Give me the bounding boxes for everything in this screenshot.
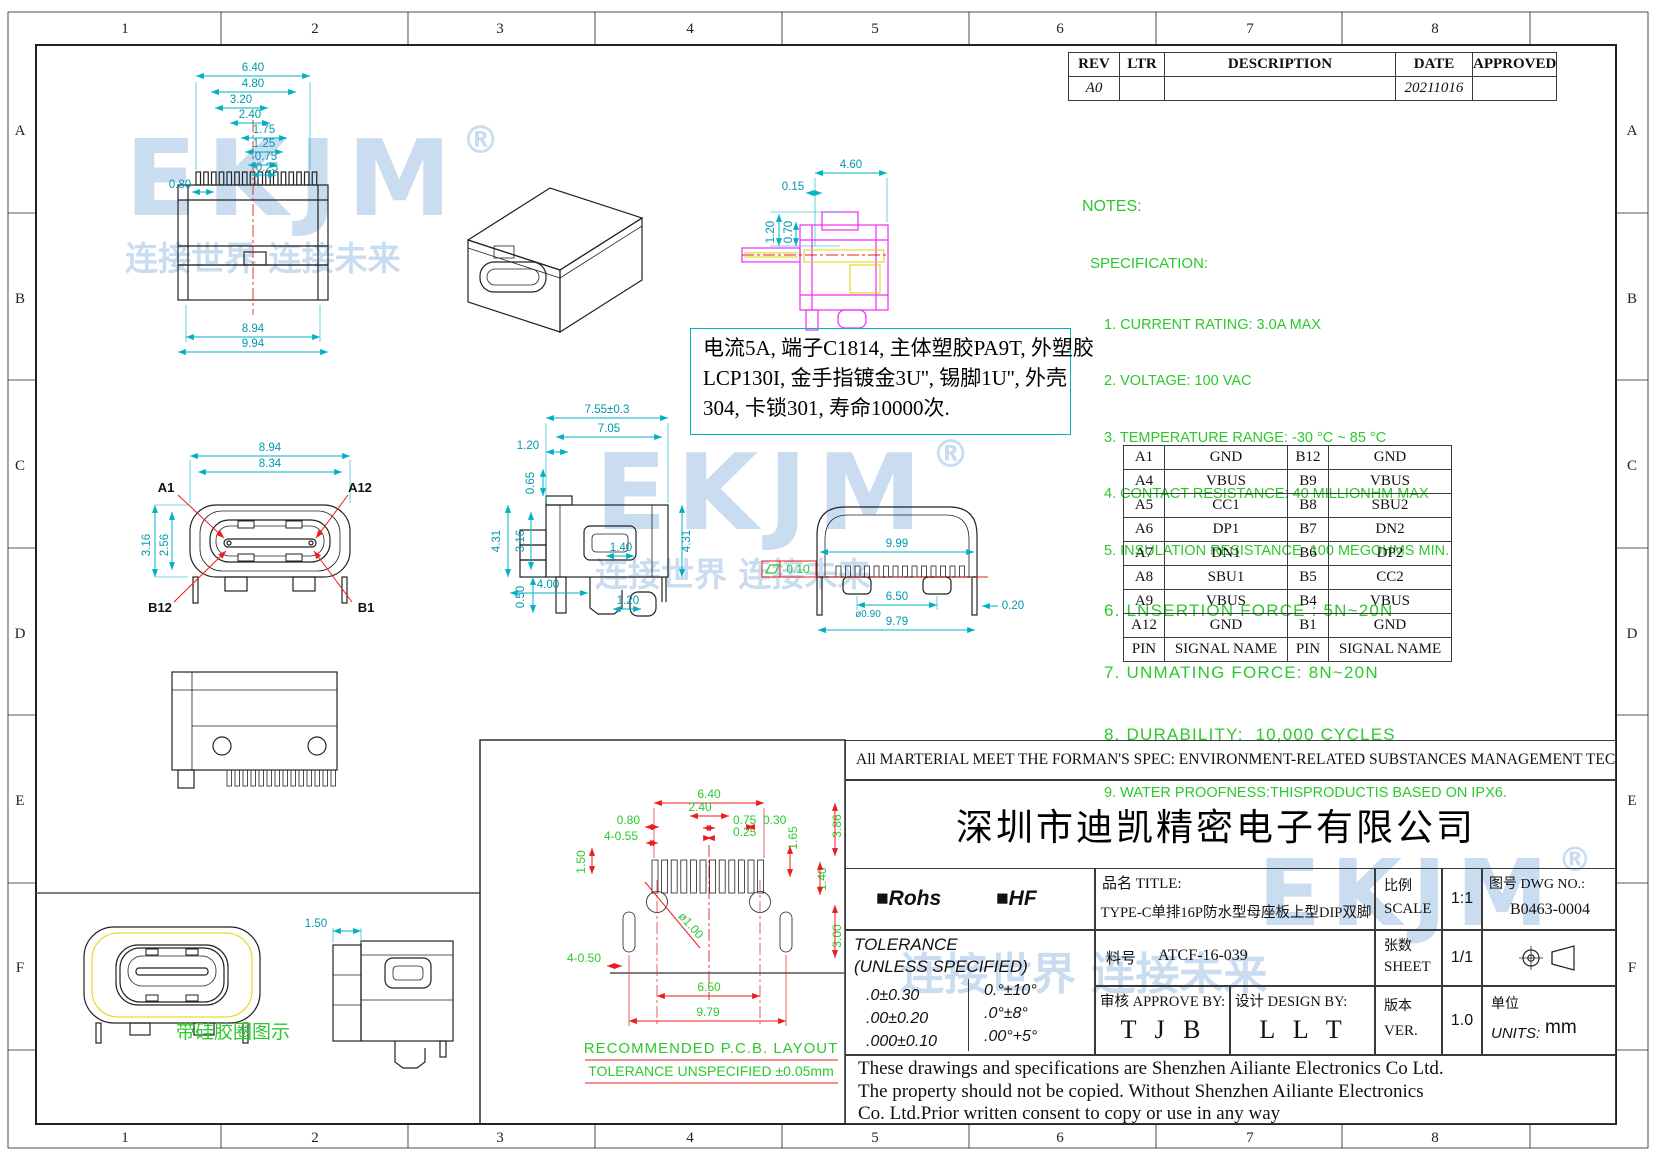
rev-value: A0 xyxy=(1069,77,1120,101)
table-row: A5CC1B8SBU2 xyxy=(1124,494,1452,518)
signal-cell: DN2 xyxy=(1329,518,1452,542)
svg-text:B1: B1 xyxy=(358,600,375,615)
note-item: 2. VOLTAGE: 100 VAC xyxy=(1104,373,1552,389)
svg-text:F: F xyxy=(1628,960,1636,976)
svg-text:2.40: 2.40 xyxy=(688,800,712,814)
units-label-en: UNITS: xyxy=(1491,1025,1540,1042)
scale-label-cell: 比例 SCALE xyxy=(1375,868,1442,930)
part-number-value: ATCF-16-039 xyxy=(1158,947,1248,965)
material-note-line: LCP130I, 金手指镀金3U'', 锡脚1U'', 外壳 xyxy=(703,363,1058,393)
svg-text:B12: B12 xyxy=(148,600,172,615)
pin-cell: A5 xyxy=(1124,494,1165,518)
pin-cell: A6 xyxy=(1124,518,1165,542)
svg-text:4-0.50: 4-0.50 xyxy=(567,951,601,965)
signal-cell: SBU2 xyxy=(1329,494,1452,518)
ltr-header: LTR xyxy=(1120,53,1165,77)
pin-cell: B8 xyxy=(1288,494,1329,518)
note-item: 1. CURRENT RATING: 3.0A MAX xyxy=(1104,317,1552,333)
table-row: A12GNDB1GND xyxy=(1124,614,1452,638)
date-value: 20211016 xyxy=(1396,77,1473,101)
sheet-label-cell: 张数 SHEET xyxy=(1375,930,1442,986)
units-cell: 单位 UNITS: mm xyxy=(1482,986,1616,1055)
dwg-no-cell: 图号 DWG NO.: B0463-0004 xyxy=(1482,868,1616,930)
svg-text:8.94: 8.94 xyxy=(242,323,265,335)
projection-cell xyxy=(1482,930,1616,986)
svg-text:4.80: 4.80 xyxy=(242,78,264,90)
svg-text:8: 8 xyxy=(1431,21,1439,37)
design-label: 设计 DESIGN BY: xyxy=(1235,990,1347,1011)
table-row: A4VBUSB9VBUS xyxy=(1124,470,1452,494)
flatness-callout: 0.10 xyxy=(762,561,816,577)
isometric-view xyxy=(468,188,642,332)
pin-cell: A12 xyxy=(1124,614,1165,638)
svg-text:5: 5 xyxy=(871,1130,879,1146)
material-note-line: 电流5A, 端子C1814, 主体塑胶PA9T, 外塑胶 xyxy=(703,333,1058,363)
svg-text:9.79: 9.79 xyxy=(886,616,908,628)
svg-text:7.55±0.3: 7.55±0.3 xyxy=(585,404,630,416)
front-view: 8.94 8.34 3.16 2.56 A1 A12 B12 B1 xyxy=(141,442,374,615)
revision-table: REV LTR DESCRIPTION DATE APPROVED A0 202… xyxy=(1068,52,1557,101)
svg-text:E: E xyxy=(1627,793,1636,809)
disclaimer-line: The property should not be copied. Witho… xyxy=(858,1081,1615,1104)
part-title: TYPE-C单排16P防水型母座板上型DIP双脚 xyxy=(1096,901,1376,922)
plan-view: 6.40 4.80 3.20 2.40 1.75 1.25 0.75 0.25 … xyxy=(169,62,328,352)
disclaimer-line: Co. Ltd.Prior written consent to copy or… xyxy=(858,1103,1615,1126)
svg-text:2.56: 2.56 xyxy=(159,534,171,556)
svg-text:6: 6 xyxy=(1056,21,1064,37)
signal-cell: SIGNAL NAME xyxy=(1165,638,1288,662)
tolerance-title: TOLERANCE xyxy=(854,935,958,955)
version-label-cn: 版本 xyxy=(1384,995,1412,1015)
svg-text:3.00: 3.00 xyxy=(830,924,844,948)
svg-text:6.50: 6.50 xyxy=(697,980,721,994)
svg-text:4.60: 4.60 xyxy=(840,159,862,171)
signal-cell: DN1 xyxy=(1165,542,1288,566)
svg-text:1.50: 1.50 xyxy=(305,918,327,930)
signal-cell: SBU1 xyxy=(1165,566,1288,590)
pin-cell: A9 xyxy=(1124,590,1165,614)
svg-text:6.40: 6.40 xyxy=(697,787,721,801)
table-row: A6DP1B7DN2 xyxy=(1124,518,1452,542)
flatness-symbol-icon xyxy=(766,565,779,573)
svg-text:1: 1 xyxy=(121,1130,129,1146)
disclaimer: These drawings and specifications are Sh… xyxy=(845,1055,1616,1124)
pin-assignment-table: A1GNDB12GND A4VBUSB9VBUS A5CC1B8SBU2 A6D… xyxy=(1123,445,1452,662)
signal-cell: GND xyxy=(1329,614,1452,638)
sheet-label-en: SHEET xyxy=(1384,959,1431,976)
svg-text:9.79: 9.79 xyxy=(696,1005,720,1019)
svg-text:A: A xyxy=(1627,123,1638,139)
svg-text:C: C xyxy=(1627,458,1637,474)
approve-value: T J B xyxy=(1096,1015,1231,1045)
svg-text:A: A xyxy=(15,123,26,139)
signal-cell: DP2 xyxy=(1329,542,1452,566)
notes-title: NOTES: xyxy=(1082,198,1552,216)
tolerance-angular: 0.°±10°.0°±8°.00°+5° xyxy=(984,979,1037,1048)
description-header: DESCRIPTION xyxy=(1165,53,1396,77)
table-row: A1GNDB12GND xyxy=(1124,446,1452,470)
svg-text:1.20: 1.20 xyxy=(517,440,539,452)
rohs-hf-cell: ■Rohs ■HF xyxy=(845,868,1095,930)
svg-text:9.99: 9.99 xyxy=(886,538,908,550)
svg-text:4: 4 xyxy=(686,1130,694,1146)
rear-view: 0.10 9.99 6.50 ø0.90 9.79 0.20 xyxy=(762,507,1024,630)
signal-cell: VBUS xyxy=(1165,470,1288,494)
svg-text:1: 1 xyxy=(121,21,129,37)
svg-text:3: 3 xyxy=(496,1130,504,1146)
gasket-caption: 带硅胶圈图示 xyxy=(176,1021,290,1043)
svg-text:0.65: 0.65 xyxy=(525,472,537,494)
svg-text:0.15: 0.15 xyxy=(782,181,804,193)
svg-text:4.00: 4.00 xyxy=(537,579,559,591)
part-number-cell: 料号 ATCF-16-039 xyxy=(1095,930,1375,986)
svg-text:2: 2 xyxy=(311,21,319,37)
svg-text:3: 3 xyxy=(496,21,504,37)
svg-text:D: D xyxy=(15,626,26,642)
disclaimer-line: These drawings and specifications are Sh… xyxy=(858,1058,1615,1081)
design-cell: 设计 DESIGN BY: L L T xyxy=(1230,986,1375,1055)
signal-cell: VBUS xyxy=(1329,470,1452,494)
pin-cell: B12 xyxy=(1288,446,1329,470)
svg-text:0.80: 0.80 xyxy=(617,813,641,827)
svg-text:2.40: 2.40 xyxy=(239,109,261,121)
signal-cell: DP1 xyxy=(1165,518,1288,542)
pin-cell: A1 xyxy=(1124,446,1165,470)
signal-cell: VBUS xyxy=(1165,590,1288,614)
svg-text:8.94: 8.94 xyxy=(259,442,282,454)
pcb-dimensions: 6.40 2.40 0.75 0.25 0.80 4-0.55 0.30 1.6… xyxy=(567,787,844,1026)
svg-text:C: C xyxy=(15,458,25,474)
plan-view-dimensions: 6.40 4.80 3.20 2.40 1.75 1.25 0.75 0.25 … xyxy=(169,62,328,352)
scale-label-en: SCALE xyxy=(1384,901,1432,918)
cross-section-dimensions: 4.60 0.15 1.20 0.70 xyxy=(765,159,887,246)
svg-text:8.34: 8.34 xyxy=(259,458,282,470)
tolerance-subtitle: (UNLESS SPECIFIED) xyxy=(854,957,1028,977)
table-row: PINSIGNAL NAMEPINSIGNAL NAME xyxy=(1124,638,1452,662)
third-angle-projection-icon xyxy=(1518,943,1582,973)
rev-header: REV xyxy=(1069,53,1120,77)
side-section-dimensions: 7.55±0.3 7.05 1.20 0.65 4.31 3.16 4.31 1… xyxy=(491,404,693,613)
svg-text:0.30: 0.30 xyxy=(763,813,787,827)
title-cell: 品名 TITLE: TYPE-C单排16P防水型母座板上型DIP双脚 xyxy=(1095,868,1375,930)
sheet-value-cell: 1/1 xyxy=(1442,930,1482,986)
svg-text:3.16: 3.16 xyxy=(515,530,527,552)
svg-text:3.86: 3.86 xyxy=(830,814,844,838)
pin-cell: B4 xyxy=(1288,590,1329,614)
pin-cell: B5 xyxy=(1288,566,1329,590)
svg-text:1.40: 1.40 xyxy=(815,867,829,891)
date-header: DATE xyxy=(1396,53,1473,77)
pin-cell: A7 xyxy=(1124,542,1165,566)
dwg-no-value: B0463-0004 xyxy=(1483,901,1617,919)
svg-text:6.40: 6.40 xyxy=(242,62,264,74)
svg-text:1.40: 1.40 xyxy=(610,542,632,554)
svg-text:B: B xyxy=(15,291,25,307)
svg-text:8: 8 xyxy=(1431,1130,1439,1146)
svg-text:9.94: 9.94 xyxy=(242,338,265,350)
svg-text:4.31: 4.31 xyxy=(681,530,693,552)
scale-value-cell: 1:1 xyxy=(1442,868,1482,930)
svg-text:0.10: 0.10 xyxy=(786,562,810,576)
svg-text:1.20: 1.20 xyxy=(617,595,639,607)
tolerance-linear: .0±0.30.00±0.20.000±0.10 xyxy=(866,984,937,1053)
units-value: mm xyxy=(1545,1017,1577,1039)
company-name: 深圳市迪凯精密电子有限公司 xyxy=(906,797,1526,851)
signal-cell: CC1 xyxy=(1165,494,1288,518)
signal-cell: SIGNAL NAME xyxy=(1329,638,1452,662)
description-value xyxy=(1165,77,1396,101)
svg-text:4: 4 xyxy=(686,21,694,37)
svg-text:3.16: 3.16 xyxy=(141,534,153,556)
svg-text:7: 7 xyxy=(1246,21,1254,37)
svg-text:D: D xyxy=(1627,626,1638,642)
scale-label-cn: 比例 xyxy=(1384,875,1412,895)
design-value: L L T xyxy=(1231,1015,1376,1045)
material-note-line: 304, 卡锁301, 寿命10000次. xyxy=(703,393,1058,423)
profile-view xyxy=(172,672,337,788)
pcb-layout: 6.40 2.40 0.75 0.25 0.80 4-0.55 0.30 1.6… xyxy=(480,740,845,1124)
svg-text:A12: A12 xyxy=(348,480,372,495)
pin-cell: B6 xyxy=(1288,542,1329,566)
note-item: 3. TEMPERATURE RANGE: -30 °C ~ 85 °C xyxy=(1104,430,1552,446)
svg-text:0.80: 0.80 xyxy=(169,179,191,191)
title-label: 品名 TITLE: xyxy=(1102,872,1182,893)
signal-cell: GND xyxy=(1165,446,1288,470)
notes-subtitle: SPECIFICATION: xyxy=(1090,255,1552,272)
pin-cell: B1 xyxy=(1288,614,1329,638)
version-label-cell: 版本 VER. xyxy=(1375,986,1442,1055)
signal-cell: CC2 xyxy=(1329,566,1452,590)
svg-text:4.31: 4.31 xyxy=(491,530,503,552)
svg-text:B: B xyxy=(1627,291,1637,307)
pin-cell: A8 xyxy=(1124,566,1165,590)
table-row: A8SBU1B5CC2 xyxy=(1124,566,1452,590)
ltr-value xyxy=(1120,77,1165,101)
pin-cell: B7 xyxy=(1288,518,1329,542)
rear-view-dimensions: 9.99 6.50 ø0.90 9.79 0.20 xyxy=(818,538,1024,630)
svg-text:0.70: 0.70 xyxy=(783,221,795,243)
svg-text:0.50: 0.50 xyxy=(515,586,527,608)
svg-text:1.50: 1.50 xyxy=(574,850,588,874)
svg-text:RECOMMENDED P.C.B. LAYOUT: RECOMMENDED P.C.B. LAYOUT xyxy=(584,1040,838,1057)
svg-text:2: 2 xyxy=(311,1130,319,1146)
part-number-label: 料号 xyxy=(1106,947,1136,968)
material-standard-strip: All MARTERIAL MEET THE FORMAN'S SPEC: EN… xyxy=(845,740,1616,780)
signal-cell: GND xyxy=(1165,614,1288,638)
material-note-box: 电流5A, 端子C1814, 主体塑胶PA9T, 外塑胶 LCP130I, 金手… xyxy=(690,328,1071,435)
note-item: 7. UNMATING FORCE: 8N~20N xyxy=(1104,663,1552,683)
signal-cell: VBUS xyxy=(1329,590,1452,614)
pin-cell: B9 xyxy=(1288,470,1329,494)
pcb-layout-caption: RECOMMENDED P.C.B. LAYOUT TOLERANCE UNSP… xyxy=(584,1040,838,1083)
sheet-label-cn: 张数 xyxy=(1384,935,1412,955)
svg-text:0.20: 0.20 xyxy=(1002,600,1024,612)
gasket-front-view: 带硅胶圈图示 xyxy=(84,927,290,1043)
rohs-label: ■Rohs xyxy=(876,887,941,911)
svg-text:1.20: 1.20 xyxy=(765,221,777,243)
table-row: A9VBUSB4VBUS xyxy=(1124,590,1452,614)
approved-value xyxy=(1473,77,1557,101)
svg-text:6.50: 6.50 xyxy=(886,591,908,603)
svg-text:5: 5 xyxy=(871,21,879,37)
svg-text:1.25: 1.25 xyxy=(253,138,275,150)
pin-cell: PIN xyxy=(1288,638,1329,662)
svg-text:7.05: 7.05 xyxy=(598,423,620,435)
svg-text:3.20: 3.20 xyxy=(230,94,252,106)
version-value-cell: 1.0 xyxy=(1442,986,1482,1055)
svg-text:TOLERANCE UNSPECIFIED ±0.05mm: TOLERANCE UNSPECIFIED ±0.05mm xyxy=(588,1063,833,1079)
gasket-dimension: 1.50 xyxy=(305,918,361,943)
svg-text:F: F xyxy=(16,960,24,976)
units-label-cn: 单位 xyxy=(1491,993,1519,1013)
tolerance-cell: TOLERANCE (UNLESS SPECIFIED) .0±0.30.00±… xyxy=(845,930,1095,1055)
pin-cell: A4 xyxy=(1124,470,1165,494)
table-row: A7DN1B6DP2 xyxy=(1124,542,1452,566)
svg-text:1.75: 1.75 xyxy=(253,124,275,136)
svg-text:1.65: 1.65 xyxy=(786,826,800,850)
svg-text:E: E xyxy=(15,793,24,809)
svg-text:A1: A1 xyxy=(158,480,175,495)
dwg-no-label: 图号 DWG NO.: xyxy=(1489,873,1585,893)
svg-text:ø0.90: ø0.90 xyxy=(855,609,881,620)
side-section-view: 7.55±0.3 7.05 1.20 0.65 4.31 3.16 4.31 1… xyxy=(491,404,693,616)
cross-section-view: 4.60 0.15 1.20 0.70 xyxy=(742,159,888,330)
divider xyxy=(968,979,969,1051)
engineering-drawing-sheet: EKJM® 连接世界 连接未来 EKJM® 连接世界 连接未来 EKJM® 连接… xyxy=(0,0,1656,1160)
approve-label: 审核 APPROVE BY: xyxy=(1100,990,1225,1011)
approved-header: APPROVED xyxy=(1473,53,1557,77)
hf-label: ■HF xyxy=(996,887,1037,911)
version-label-en: VER. xyxy=(1384,1023,1418,1040)
svg-text:7: 7 xyxy=(1246,1130,1254,1146)
pin-cell: PIN xyxy=(1124,638,1165,662)
svg-text:0.25: 0.25 xyxy=(256,162,278,174)
signal-cell: GND xyxy=(1329,446,1452,470)
approve-cell: 审核 APPROVE BY: T J B xyxy=(1095,986,1230,1055)
svg-text:4-0.55: 4-0.55 xyxy=(604,829,638,843)
gasket-side-view: 1.50 xyxy=(305,918,453,1068)
svg-text:6: 6 xyxy=(1056,1130,1064,1146)
